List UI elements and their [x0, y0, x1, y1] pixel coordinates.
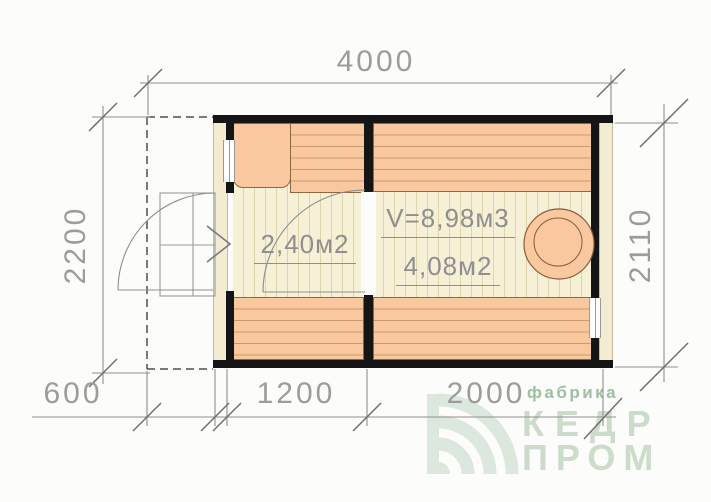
dimension-ticks — [89, 69, 688, 439]
floor-plan-canvas: фабрика КЕДР ПРОМ — [0, 0, 711, 502]
dimension-main-room-width: 2000 — [447, 377, 526, 411]
entrance-direction-arrow — [207, 226, 230, 262]
vestibule-area-label: 2,40м2 — [254, 229, 356, 264]
stove-circle — [524, 209, 594, 279]
roof-overhang-dashed-outline — [147, 117, 213, 369]
porch-steps — [160, 193, 215, 296]
dimension-total-width: 4000 — [337, 45, 416, 79]
steam-room-volume-label: V=8,98м3 — [381, 203, 515, 238]
dimension-left-height: 2200 — [59, 206, 93, 285]
steam-room-area-label: 4,08м2 — [396, 251, 500, 286]
entrance-door-swing — [118, 193, 215, 290]
dimension-right-height: 2110 — [624, 207, 658, 284]
dimension-porch-width: 600 — [43, 377, 102, 411]
dimension-vestibule-width: 1200 — [257, 377, 336, 411]
